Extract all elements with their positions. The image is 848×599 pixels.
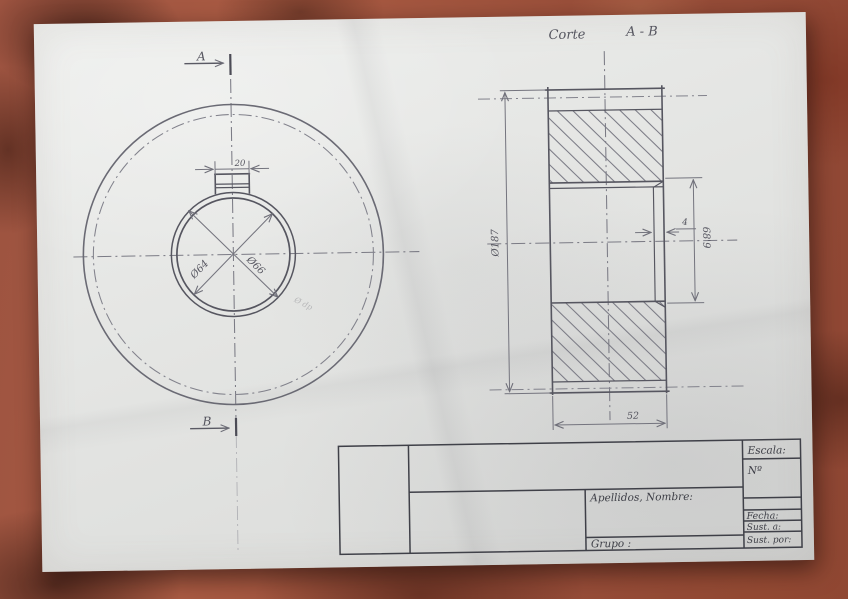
dim-outer-diameter	[500, 90, 551, 394]
dim-keyway-width-label: 20	[233, 159, 246, 169]
title-numero-label: Nº	[747, 465, 762, 477]
dim-bore-label: Ø64	[188, 258, 211, 281]
dim-chamfer-label: 4	[681, 218, 688, 228]
vertical-centerline	[230, 55, 236, 434]
section-horizontal-centerline	[487, 240, 737, 244]
cut-label-b: B	[201, 414, 211, 428]
title-sust-a-label: Sust. a:	[747, 522, 781, 533]
hatch-upper	[548, 109, 663, 183]
front-view: 20 Ø64 Ø66 Ø dp A B	[70, 46, 424, 553]
pitch-line-bottom	[490, 386, 747, 390]
title-block-lines	[338, 439, 802, 554]
photo-of-technical-drawing: 20 Ø64 Ø66 Ø dp A B	[0, 0, 848, 599]
vertical-centerline-extension	[236, 434, 238, 551]
dim-outer-diameter-label: Ø187	[490, 229, 501, 258]
drawing-canvas: 20 Ø64 Ø66 Ø dp A B	[34, 12, 815, 572]
dim-width-label: 52	[627, 411, 639, 422]
dim-hub-label: Ø66	[243, 254, 267, 278]
section-title-letters: A - B	[625, 24, 658, 40]
drawing-sheet: 20 Ø64 Ø66 Ø dp A B	[34, 12, 815, 572]
cutting-plane-b	[190, 418, 236, 437]
dim-chamfer	[635, 229, 696, 233]
bore-chamfer-edge	[653, 187, 655, 301]
title-escala-label: Escala:	[746, 444, 786, 457]
section-title-word: Corte	[548, 27, 585, 43]
cutting-plane-a	[184, 54, 230, 76]
title-grupo-label: Grupo :	[591, 538, 631, 551]
pitch-line-top	[478, 96, 707, 100]
title-apellidos-label: Apellidos, Nombre:	[589, 491, 693, 505]
hatch-lower	[551, 301, 666, 382]
title-fecha-label: Fecha:	[745, 510, 778, 522]
section-view: Corte A - B	[477, 23, 747, 431]
title-sust-por-label: Sust. por:	[747, 535, 792, 546]
dim-hub-line	[189, 210, 278, 299]
title-block: Escala: Nº Fecha: Sust. a: Sust. por: Ap…	[338, 439, 802, 554]
faint-pencil-note: Ø dp	[292, 295, 314, 312]
horizontal-centerline	[73, 252, 419, 257]
cut-label-a: A	[196, 49, 206, 63]
dim-bore-keyway-label: 68'9	[700, 227, 711, 250]
